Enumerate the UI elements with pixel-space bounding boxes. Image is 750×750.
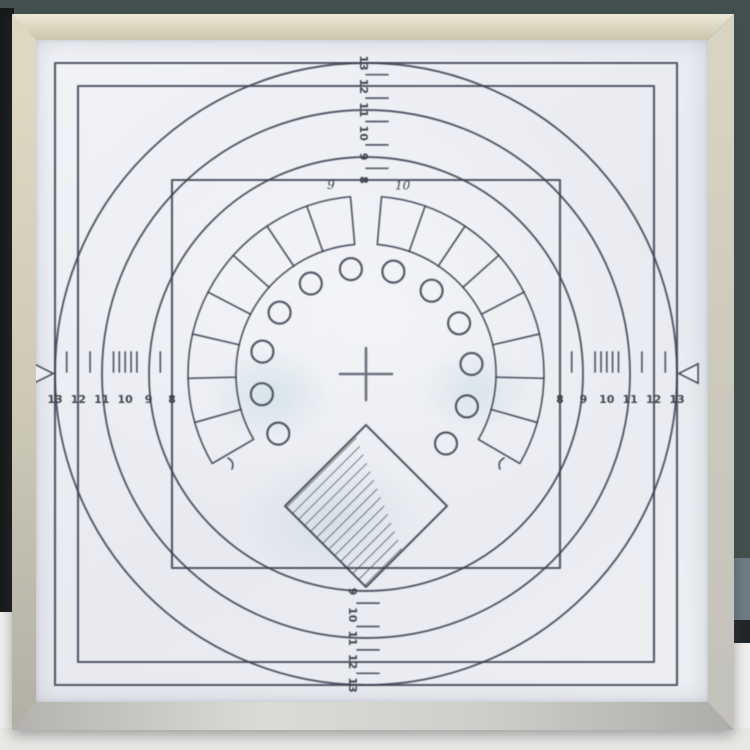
ring-dot: [269, 302, 291, 324]
scale-left-label-9: 9: [145, 393, 153, 406]
wedge-divider: [193, 334, 240, 345]
scale-right-label-12: 12: [646, 393, 661, 406]
scale-top-label-11: 11: [357, 102, 370, 117]
wedge-band-right: [377, 197, 544, 464]
wedge-divider: [195, 409, 241, 422]
wedge-divider: [409, 206, 425, 251]
table-surface: [0, 728, 750, 750]
ring-dot: [421, 280, 443, 302]
wedge-label-9: 9: [327, 178, 335, 192]
ring-dot: [251, 383, 273, 405]
scale-top-label-8: 8: [357, 176, 370, 184]
ring-dot: [340, 258, 362, 280]
scale-left-label-13: 13: [47, 393, 62, 406]
scale-right-label-10: 10: [599, 393, 615, 406]
ring-end-mark-right: [499, 458, 504, 469]
frame-bottom-bar: [12, 702, 734, 730]
scale-left-label-12: 12: [71, 393, 86, 406]
scale-right-label-11: 11: [623, 393, 638, 406]
wedge-label-10: 10: [395, 179, 411, 193]
scale-left-label-8: 8: [168, 393, 176, 406]
scale-bottom-label-13: 13: [346, 677, 359, 692]
wedge-divider: [481, 292, 524, 314]
photo-of-collimator-test-chart: 9101312111098910111213131211109889101112…: [0, 0, 750, 750]
ring-dot: [267, 423, 289, 445]
ring-dot: [300, 273, 322, 295]
wedge-divider: [267, 226, 294, 266]
ring-dot: [435, 433, 457, 455]
scale-right-label-13: 13: [669, 393, 684, 406]
printed-ink: 9101312111098910111213131211109889101112…: [36, 55, 698, 692]
scale-bottom-label-9: 9: [346, 588, 359, 596]
scale-top-label-9: 9: [357, 153, 370, 161]
center-crosshair: [340, 348, 392, 400]
wedge-divider: [188, 377, 236, 378]
scale-right-label-8: 8: [556, 393, 564, 406]
scale-bottom-label-10: 10: [346, 607, 359, 623]
frame-right-bar: [708, 14, 734, 730]
scale-left-label-11: 11: [94, 393, 109, 406]
scale-top-label-10: 10: [357, 126, 370, 142]
scale-bottom-label-12: 12: [346, 654, 359, 669]
metal-frame: 9101312111098910111213131211109889101112…: [12, 14, 734, 730]
scale-top-label-12: 12: [357, 79, 370, 94]
ring-dot: [448, 312, 470, 334]
wedge-divider: [493, 334, 540, 345]
scale-bottom-label-11: 11: [346, 631, 359, 646]
scale-left-pointer-triangle: [36, 364, 53, 383]
ring-dot: [461, 353, 483, 375]
ring-dot: [456, 395, 478, 417]
wedge-divider: [496, 377, 544, 378]
chart-paper: 9101312111098910111213131211109889101112…: [36, 40, 708, 702]
wedge-divider: [438, 226, 465, 266]
ring-end-mark-left: [228, 458, 233, 469]
test-pattern-drawing: 9101312111098910111213131211109889101112…: [36, 40, 708, 702]
wedge-divider: [307, 206, 323, 251]
ring-dot: [251, 341, 273, 363]
scale-top-label-13: 13: [357, 55, 370, 70]
wedge-divider: [208, 292, 251, 314]
wedge-divider: [233, 255, 269, 287]
wedge-divider: [491, 409, 537, 422]
wedge-divider: [463, 255, 499, 287]
wedge-band-left: [188, 197, 355, 464]
scale-right-pointer-triangle: [679, 364, 698, 383]
ring-dot: [382, 261, 404, 283]
frame-left-bar: [12, 14, 36, 730]
scale-right-label-9: 9: [580, 393, 588, 406]
frame-top-bar: [12, 14, 734, 40]
scale-left-label-10: 10: [118, 393, 134, 406]
